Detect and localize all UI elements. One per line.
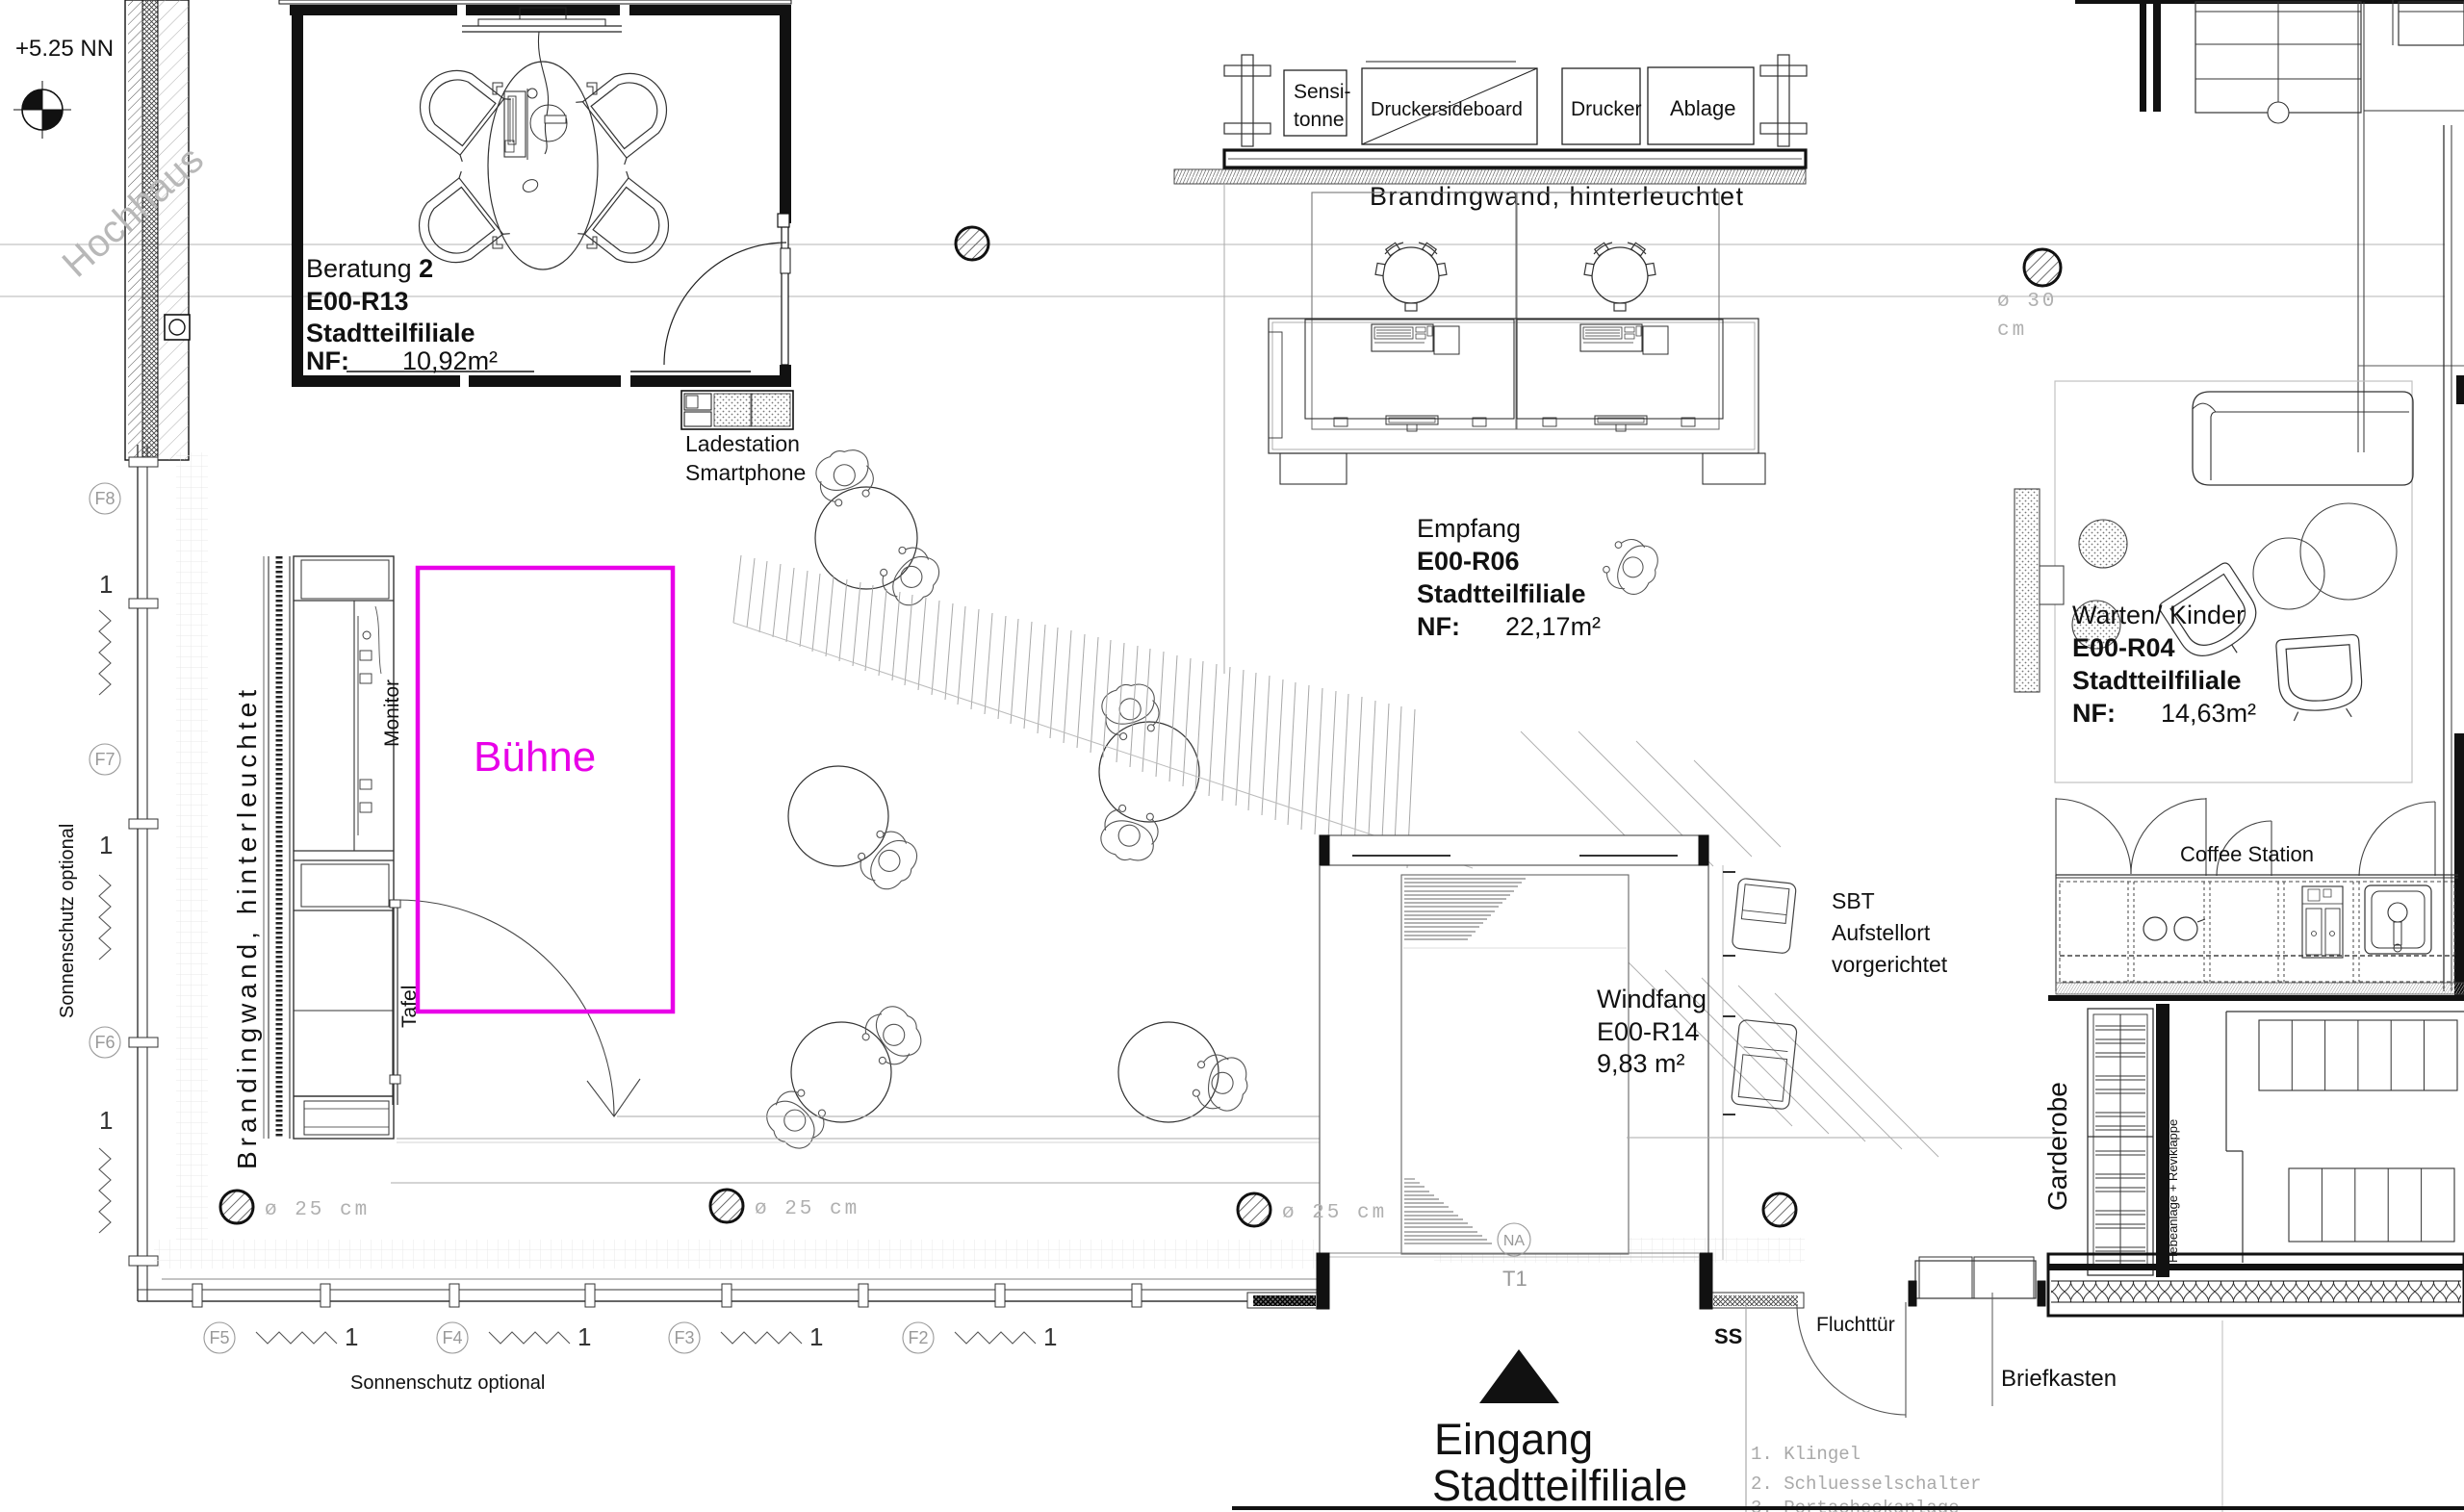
svg-text:Warten/ Kinder: Warten/ Kinder [2072, 601, 2245, 629]
svg-text:Ablage: Ablage [1670, 96, 1736, 120]
svg-text:Aufstellort: Aufstellort [1832, 920, 1931, 945]
svg-text:9,83 m²: 9,83 m² [1597, 1049, 1685, 1078]
svg-text:Sensi-: Sensi- [1294, 81, 1351, 103]
svg-text:Eingang: Eingang [1434, 1415, 1593, 1464]
svg-text:NF:: NF: [306, 346, 349, 375]
svg-text:NF:: NF: [1417, 612, 1460, 641]
svg-text:T1: T1 [1502, 1267, 1527, 1291]
svg-text:14,63m²: 14,63m² [2161, 699, 2256, 728]
svg-text:Brandingwand, hinterleuchtet: Brandingwand, hinterleuchtet [1370, 182, 1743, 211]
svg-text:F6: F6 [94, 1033, 115, 1052]
svg-text:ø 25 cm: ø 25 cm [755, 1198, 860, 1220]
svg-text:F8: F8 [94, 489, 115, 508]
svg-text:Monitor: Monitor [381, 679, 403, 747]
svg-text:Stadtteilfiliale: Stadtteilfiliale [1432, 1461, 1687, 1510]
svg-text:F5: F5 [209, 1328, 229, 1347]
svg-text:Briefkasten: Briefkasten [2001, 1366, 2117, 1392]
svg-text:Bühne: Bühne [474, 733, 596, 781]
svg-text:F2: F2 [908, 1328, 928, 1347]
svg-text:E00-R04: E00-R04 [2072, 633, 2175, 662]
svg-text:E00-R13: E00-R13 [306, 287, 409, 316]
svg-text:1: 1 [809, 1322, 823, 1351]
svg-text:Windfang: Windfang [1597, 985, 1707, 1013]
svg-text:vorgerichtet: vorgerichtet [1832, 952, 1948, 977]
svg-text:ø 25 cm: ø 25 cm [265, 1199, 370, 1221]
svg-text:cm: cm [1997, 320, 2027, 342]
svg-text:1: 1 [99, 570, 113, 599]
svg-text:1: 1 [99, 1106, 113, 1135]
svg-text:Stadtteilfiliale: Stadtteilfiliale [1417, 579, 1586, 608]
svg-text:Hebeanlage + Reviklappe: Hebeanlage + Reviklappe [2166, 1119, 2180, 1263]
svg-text:+5.25 NN: +5.25 NN [15, 36, 114, 62]
svg-text:Stadtteilfiliale: Stadtteilfiliale [306, 319, 475, 347]
svg-text:1. Klingel: 1. Klingel [1751, 1444, 1861, 1465]
svg-text:NF:: NF: [2072, 699, 2116, 728]
svg-text:E00-R06: E00-R06 [1417, 547, 1520, 576]
svg-text:NA: NA [1503, 1233, 1526, 1249]
svg-text:SS: SS [1714, 1324, 1742, 1348]
svg-text:Druckersideboard: Druckersideboard [1371, 99, 1523, 120]
svg-text:tonne: tonne [1294, 109, 1345, 131]
svg-text:Sonnenschutz optional: Sonnenschutz optional [350, 1372, 545, 1394]
svg-text:Fluchttür: Fluchttür [1816, 1314, 1895, 1336]
svg-text:ø 25 cm: ø 25 cm [1282, 1202, 1387, 1224]
svg-text:Smartphone: Smartphone [685, 460, 806, 485]
svg-text:1: 1 [577, 1322, 591, 1351]
svg-text:E00-R14: E00-R14 [1597, 1017, 1700, 1046]
svg-text:F7: F7 [94, 750, 115, 769]
svg-text:Empfang: Empfang [1417, 514, 1521, 543]
svg-text:1: 1 [1043, 1322, 1057, 1351]
svg-text:Sonnenschutz optional: Sonnenschutz optional [57, 824, 78, 1018]
svg-text:Drucker: Drucker [1571, 98, 1642, 120]
svg-text:F3: F3 [674, 1328, 694, 1347]
svg-text:F4: F4 [442, 1328, 462, 1347]
svg-text:10,92m²: 10,92m² [402, 346, 498, 375]
svg-text:SBT: SBT [1832, 888, 1875, 913]
svg-text:Coffee Station: Coffee Station [2180, 842, 2314, 866]
svg-text:Ladestation: Ladestation [685, 431, 800, 456]
svg-text:1: 1 [99, 831, 113, 859]
svg-text:Stadtteilfiliale: Stadtteilfiliale [2072, 666, 2242, 695]
svg-text:1: 1 [345, 1322, 358, 1351]
svg-text:Beratung 2: Beratung 2 [306, 254, 433, 283]
svg-text:Garderobe: Garderobe [2042, 1082, 2072, 1211]
svg-text:2. Schluesselschalter: 2. Schluesselschalter [1751, 1474, 1981, 1495]
svg-text:22,17m²: 22,17m² [1505, 612, 1601, 641]
svg-text:ø 30: ø 30 [1997, 291, 2057, 313]
